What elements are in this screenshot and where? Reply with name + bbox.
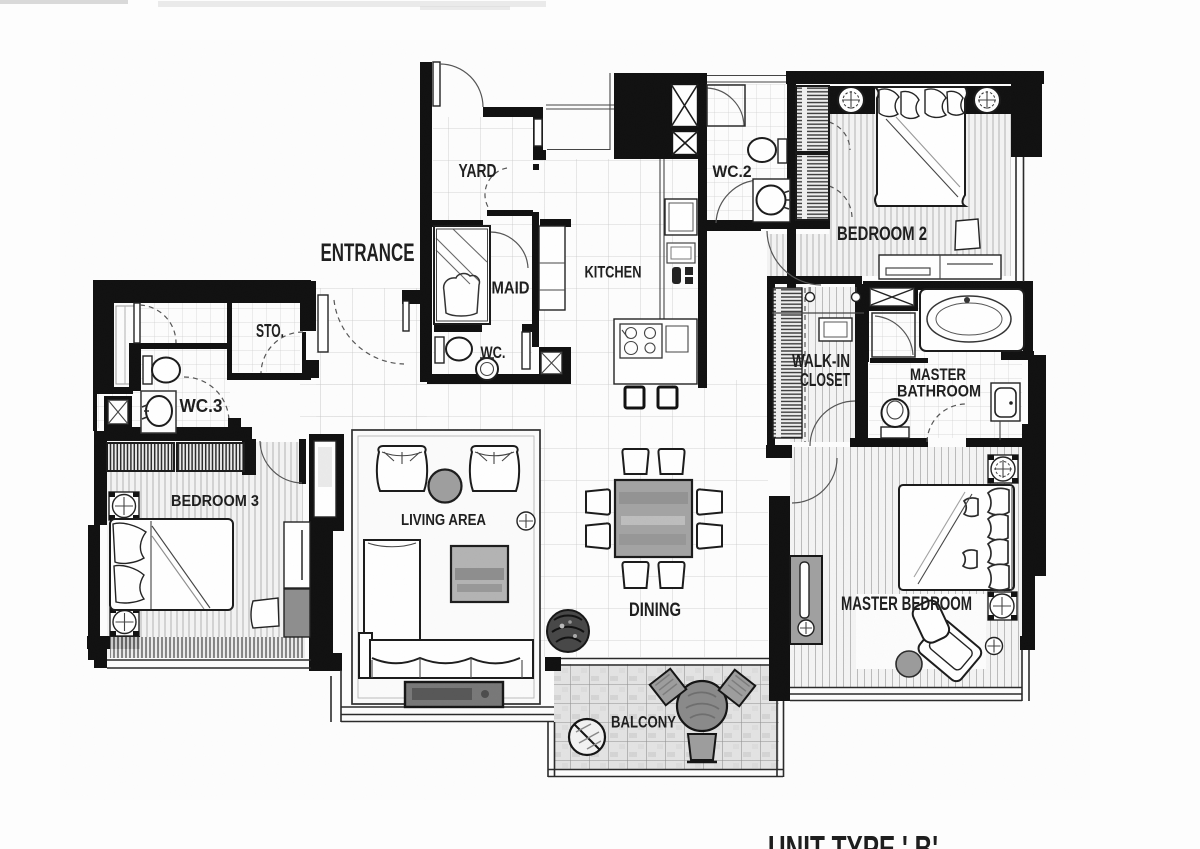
svg-text:UNIT TYPE ' B': UNIT TYPE ' B' <box>768 828 938 849</box>
